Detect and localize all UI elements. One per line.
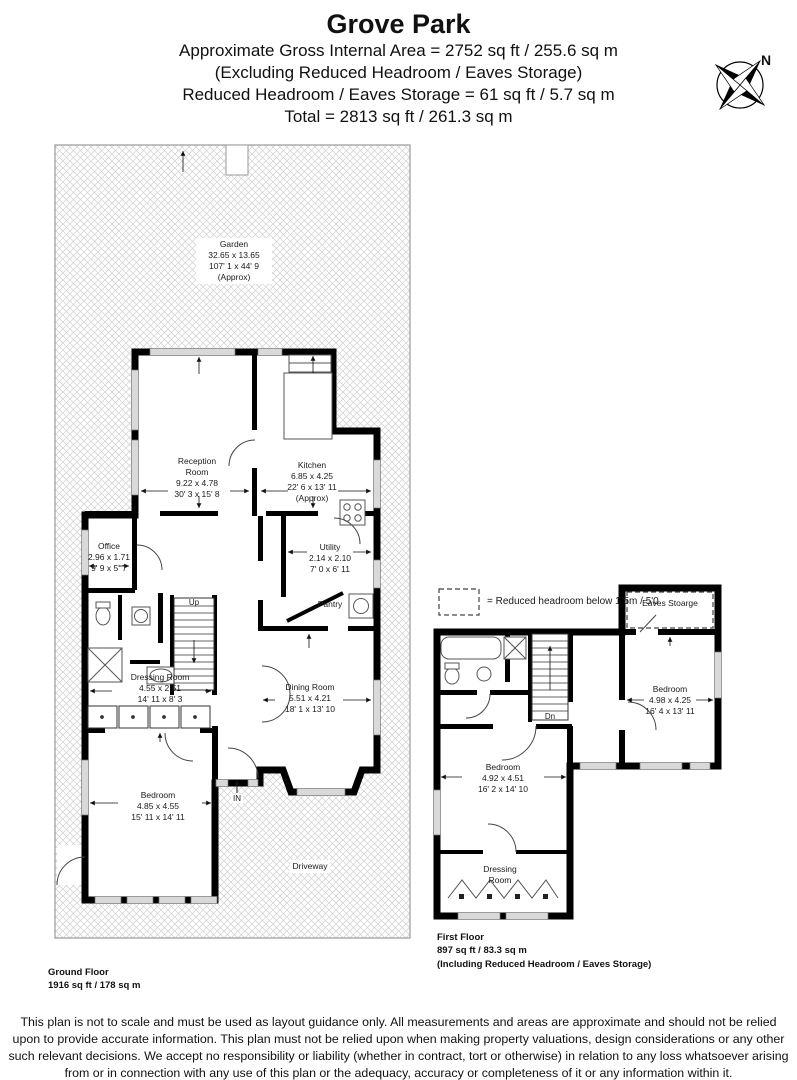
dining-room-label: Dining Room 5.51 x 4.21 18' 1 x 13' 10 <box>265 682 355 715</box>
pantry-label: Pantry <box>300 599 360 610</box>
dressing-room-first-label: Dressing Room <box>478 864 522 886</box>
first-floor-note: (Including Reduced Headroom / Eaves Stor… <box>437 958 651 971</box>
reception-room-label: Reception Room 9.22 x 4.78 30' 3 x 15' 8 <box>171 456 223 500</box>
first-floor-title: First Floor <box>437 931 651 944</box>
header-total-line: Total = 2813 sq ft / 261.3 sq m <box>0 106 797 128</box>
first-floor-plan <box>434 588 722 920</box>
floorplan-page: Grove Park Approximate Gross Internal Ar… <box>0 0 797 1080</box>
driveway-label: Driveway <box>290 860 331 873</box>
kitchen-label: Kitchen 6.85 x 4.25 22' 6 x 13' 11 (Appr… <box>273 460 351 504</box>
garden-label: Garden 32.65 x 13.65 107' 1 x 44' 9 (App… <box>196 238 272 284</box>
first-floor-area: 897 sq ft / 83.3 sq m <box>437 944 651 957</box>
legend-dashed-box <box>439 589 479 615</box>
ground-floor-footer: Ground Floor 1916 sq ft / 178 sq m <box>48 966 140 993</box>
ground-floor-area: 1916 sq ft / 178 sq m <box>48 979 140 992</box>
page-title: Grove Park <box>0 8 797 40</box>
stairs-up-label: Up <box>189 598 199 607</box>
disclaimer-text: This plan is not to scale and must be us… <box>8 1014 789 1080</box>
compass-north-label: N <box>761 52 771 68</box>
ground-floor-title: Ground Floor <box>48 966 140 979</box>
header: Grove Park Approximate Gross Internal Ar… <box>0 8 797 128</box>
office-label: Office 2.96 x 1.71 9' 9 x 5' 7 <box>76 541 142 574</box>
bedroom-first-right-label: Bedroom 4.98 x 4.25 16' 4 x 13' 11 <box>625 684 715 717</box>
header-excluding-line: (Excluding Reduced Headroom / Eaves Stor… <box>0 62 797 84</box>
utility-label: Utility 2.14 x 2.10 7' 0 x 6' 11 <box>297 542 363 575</box>
first-floor-stairs <box>532 634 568 720</box>
floor-plan-svg <box>0 0 797 1080</box>
header-area-line: Approximate Gross Internal Area = 2752 s… <box>0 40 797 62</box>
stairs-down-label: Dn <box>545 712 555 721</box>
first-floor-footer: First Floor 897 sq ft / 83.3 sq m (Inclu… <box>437 931 651 971</box>
bedroom-ground-label: Bedroom 4.85 x 4.55 15' 11 x 14' 11 <box>113 790 203 823</box>
bedroom-first-left-label: Bedroom 4.92 x 4.51 16' 2 x 14' 10 <box>458 762 548 795</box>
header-reduced-line: Reduced Headroom / Eaves Storage = 61 sq… <box>0 84 797 106</box>
dressing-room-label: Dressing Room 4.55 x 2.51 14' 11 x 8' 3 <box>115 672 205 705</box>
entrance-in-label: IN <box>231 794 243 803</box>
eaves-storage-label: Eaves Stoarge <box>625 598 715 609</box>
